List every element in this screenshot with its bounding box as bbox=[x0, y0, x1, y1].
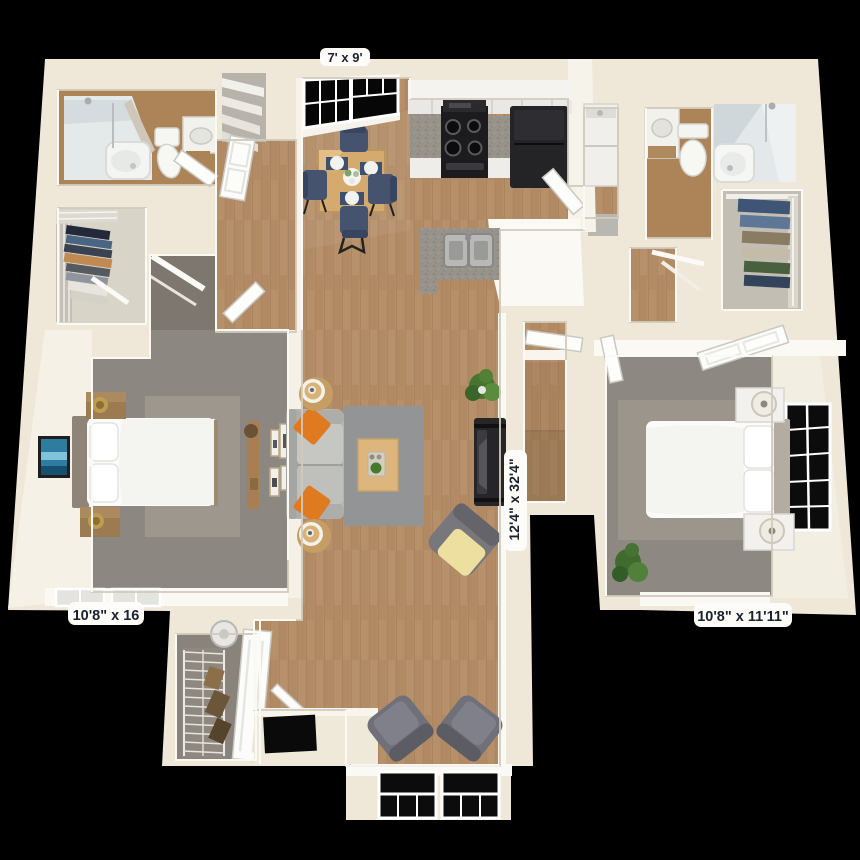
svg-text:10'8" x 16: 10'8" x 16 bbox=[73, 608, 140, 624]
svg-text:10'8" x 11'11": 10'8" x 11'11" bbox=[697, 609, 789, 625]
svg-text:12'4" x 32'4": 12'4" x 32'4" bbox=[506, 458, 522, 540]
svg-text:7' x 9': 7' x 9' bbox=[327, 50, 362, 65]
